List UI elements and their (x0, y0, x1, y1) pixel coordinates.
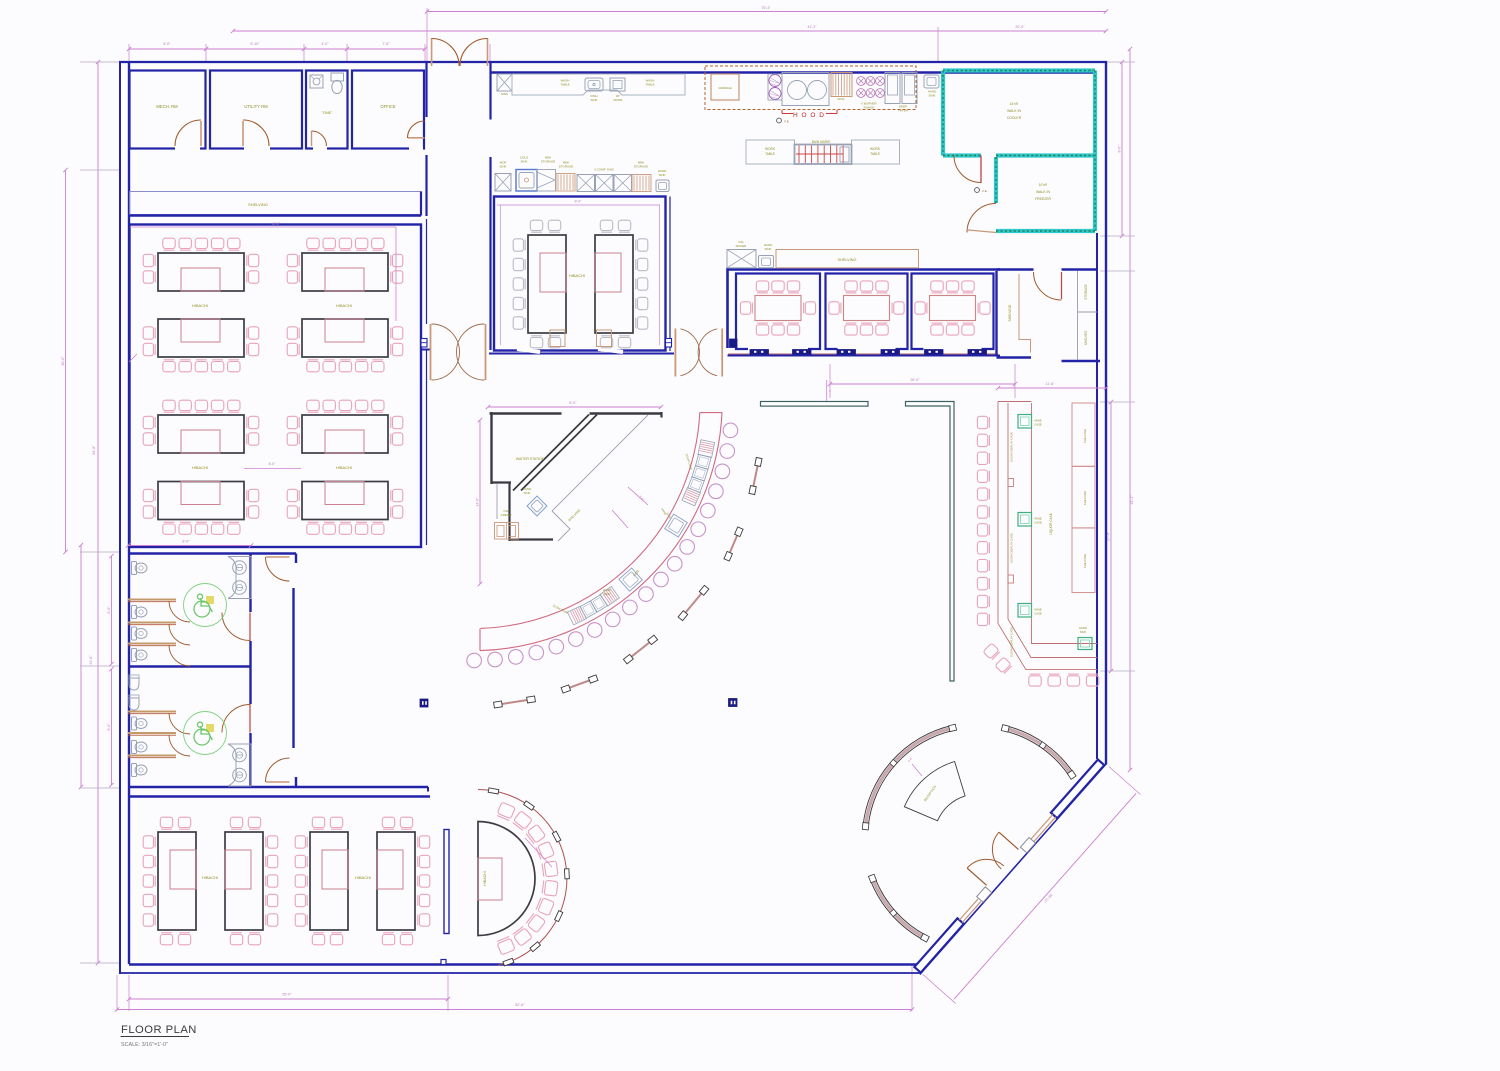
svg-text:9'-0": 9'-0" (107, 723, 111, 731)
svg-text:SINK: SINK (604, 592, 611, 596)
svg-text:WORK: WORK (765, 147, 776, 151)
svg-text:MECH. RM: MECH. RM (156, 104, 178, 109)
svg-text:CASE: CASE (1034, 423, 1042, 427)
svg-text:TABLE: TABLE (870, 152, 880, 156)
svg-text:43'-4": 43'-4" (1130, 495, 1134, 505)
svg-text:HIBACHI: HIBACHI (336, 465, 352, 470)
svg-text:TABLE: TABLE (645, 83, 654, 87)
svg-text:SINK: SINK (499, 165, 506, 169)
svg-text:SINK: SINK (764, 247, 771, 251)
svg-text:HIBACHI: HIBACHI (202, 875, 218, 880)
svg-text:CREAM: CREAM (501, 513, 512, 517)
svg-text:HIBACHI: HIBACHI (483, 871, 487, 886)
svg-text:SUSHI DISPLAY CASE: SUSHI DISPLAY CASE (1010, 533, 1014, 563)
svg-text:3 COMP. SINK: 3 COMP. SINK (594, 168, 614, 172)
svg-text:MAKER: MAKER (736, 244, 748, 248)
svg-text:SUSHI DISPLAY CASE: SUSHI DISPLAY CASE (1010, 432, 1014, 462)
svg-text:SUSHI DISPLAY CASE: SUSHI DISPLAY CASE (1010, 627, 1014, 657)
svg-text:TABLE: TABLE (765, 152, 775, 156)
svg-text:RANGE: RANGE (864, 106, 875, 110)
svg-text:FLOOR PLAN: FLOOR PLAN (121, 1024, 197, 1036)
svg-text:OFFICE: OFFICE (380, 104, 396, 109)
svg-text:9'-0": 9'-0" (1118, 145, 1122, 153)
svg-text:94'-8": 94'-8" (92, 445, 96, 455)
svg-text:9'-10": 9'-10" (250, 42, 260, 46)
svg-text:24'-8": 24'-8" (89, 655, 93, 665)
svg-text:HIBACHI: HIBACHI (192, 303, 208, 308)
svg-text:4'-0": 4'-0" (321, 42, 329, 46)
svg-text:6'-0": 6'-0" (569, 401, 577, 405)
svg-text:GRIDDLE: GRIDDLE (718, 86, 731, 90)
svg-text:STORAGE: STORAGE (559, 165, 574, 169)
svg-text:WALK IN: WALK IN (1007, 109, 1021, 113)
svg-text:COOLER: COOLER (1007, 116, 1022, 120)
svg-text:SINK: SINK (590, 98, 597, 102)
svg-text:20'-0": 20'-0" (1015, 25, 1025, 29)
svg-text:SHELVES: SHELVES (1084, 331, 1088, 345)
svg-text:LIQUOR CASE: LIQUOR CASE (1049, 513, 1053, 535)
svg-text:11'-6": 11'-6" (1046, 382, 1056, 386)
svg-text:SHELVING: SHELVING (1008, 304, 1012, 321)
svg-text:SHELVING: SHELVING (248, 202, 268, 207)
svg-text:SHELVING: SHELVING (838, 258, 857, 262)
svg-text:14'-0": 14'-0" (476, 497, 480, 507)
svg-text:SINK: SINK (501, 92, 508, 96)
svg-text:SCALE: 3/16"=1'-0": SCALE: 3/16"=1'-0" (121, 1042, 168, 1048)
svg-text:SHELVING: SHELVING (1083, 490, 1087, 505)
svg-text:82'-6": 82'-6" (515, 1003, 525, 1007)
svg-text:WAITER STATION: WAITER STATION (516, 457, 545, 461)
svg-text:STORAGE: STORAGE (634, 165, 649, 169)
svg-text:14'x9': 14'x9' (1010, 102, 1019, 106)
svg-text:9'-0": 9'-0" (107, 606, 111, 614)
svg-text:F.E.: F.E. (982, 189, 987, 193)
svg-text:SINK: SINK (658, 173, 665, 177)
svg-text:BAIN MARIE: BAIN MARIE (812, 140, 830, 144)
svg-text:SHELVING: SHELVING (1083, 428, 1087, 443)
svg-text:WOK: WOK (837, 97, 844, 101)
svg-text:WALK IN: WALK IN (1036, 190, 1050, 194)
svg-text:8'-0": 8'-0" (575, 200, 583, 204)
svg-text:SHELVING: SHELVING (1083, 553, 1087, 568)
svg-text:26'-0": 26'-0" (910, 378, 920, 382)
svg-text:HIBACHI: HIBACHI (569, 273, 585, 278)
svg-text:SINK: SINK (1080, 630, 1087, 634)
svg-text:F.E.: F.E. (784, 120, 789, 124)
svg-text:6'-0": 6'-0" (269, 462, 277, 466)
svg-text:41'-2": 41'-2" (807, 25, 817, 29)
svg-text:8'-0": 8'-0" (182, 540, 190, 544)
svg-text:CASE: CASE (1034, 521, 1042, 525)
svg-text:SINK: SINK (520, 160, 527, 164)
svg-text:FREEZER: FREEZER (1035, 197, 1051, 201)
svg-text:SINK: SINK (928, 94, 935, 98)
svg-text:TABLE: TABLE (560, 83, 569, 87)
svg-text:10'x9': 10'x9' (1039, 183, 1048, 187)
svg-text:40'-0": 40'-0" (272, 222, 281, 226)
svg-text:36'-0": 36'-0" (61, 356, 65, 366)
svg-text:75'-4": 75'-4" (761, 6, 771, 10)
svg-text:55'-0": 55'-0" (282, 993, 292, 997)
svg-text:STORAGE: STORAGE (1084, 284, 1088, 300)
svg-text:7'-6": 7'-6" (382, 42, 390, 46)
svg-text:HIBACHI: HIBACHI (336, 303, 352, 308)
svg-text:"ONE": "ONE" (322, 111, 334, 115)
svg-text:CASE: CASE (1034, 612, 1042, 616)
svg-text:UTILITY RM: UTILITY RM (244, 104, 268, 109)
svg-text:WORK: WORK (613, 98, 622, 102)
svg-text:HIBACHI: HIBACHI (355, 875, 371, 880)
svg-text:H O O D: H O O D (793, 112, 825, 119)
svg-text:SINK: SINK (523, 491, 530, 495)
svg-text:STORAGE: STORAGE (541, 160, 556, 164)
svg-text:8'-0": 8'-0" (163, 42, 171, 46)
svg-text:WORK: WORK (870, 147, 881, 151)
svg-text:HIBACHI: HIBACHI (192, 465, 208, 470)
